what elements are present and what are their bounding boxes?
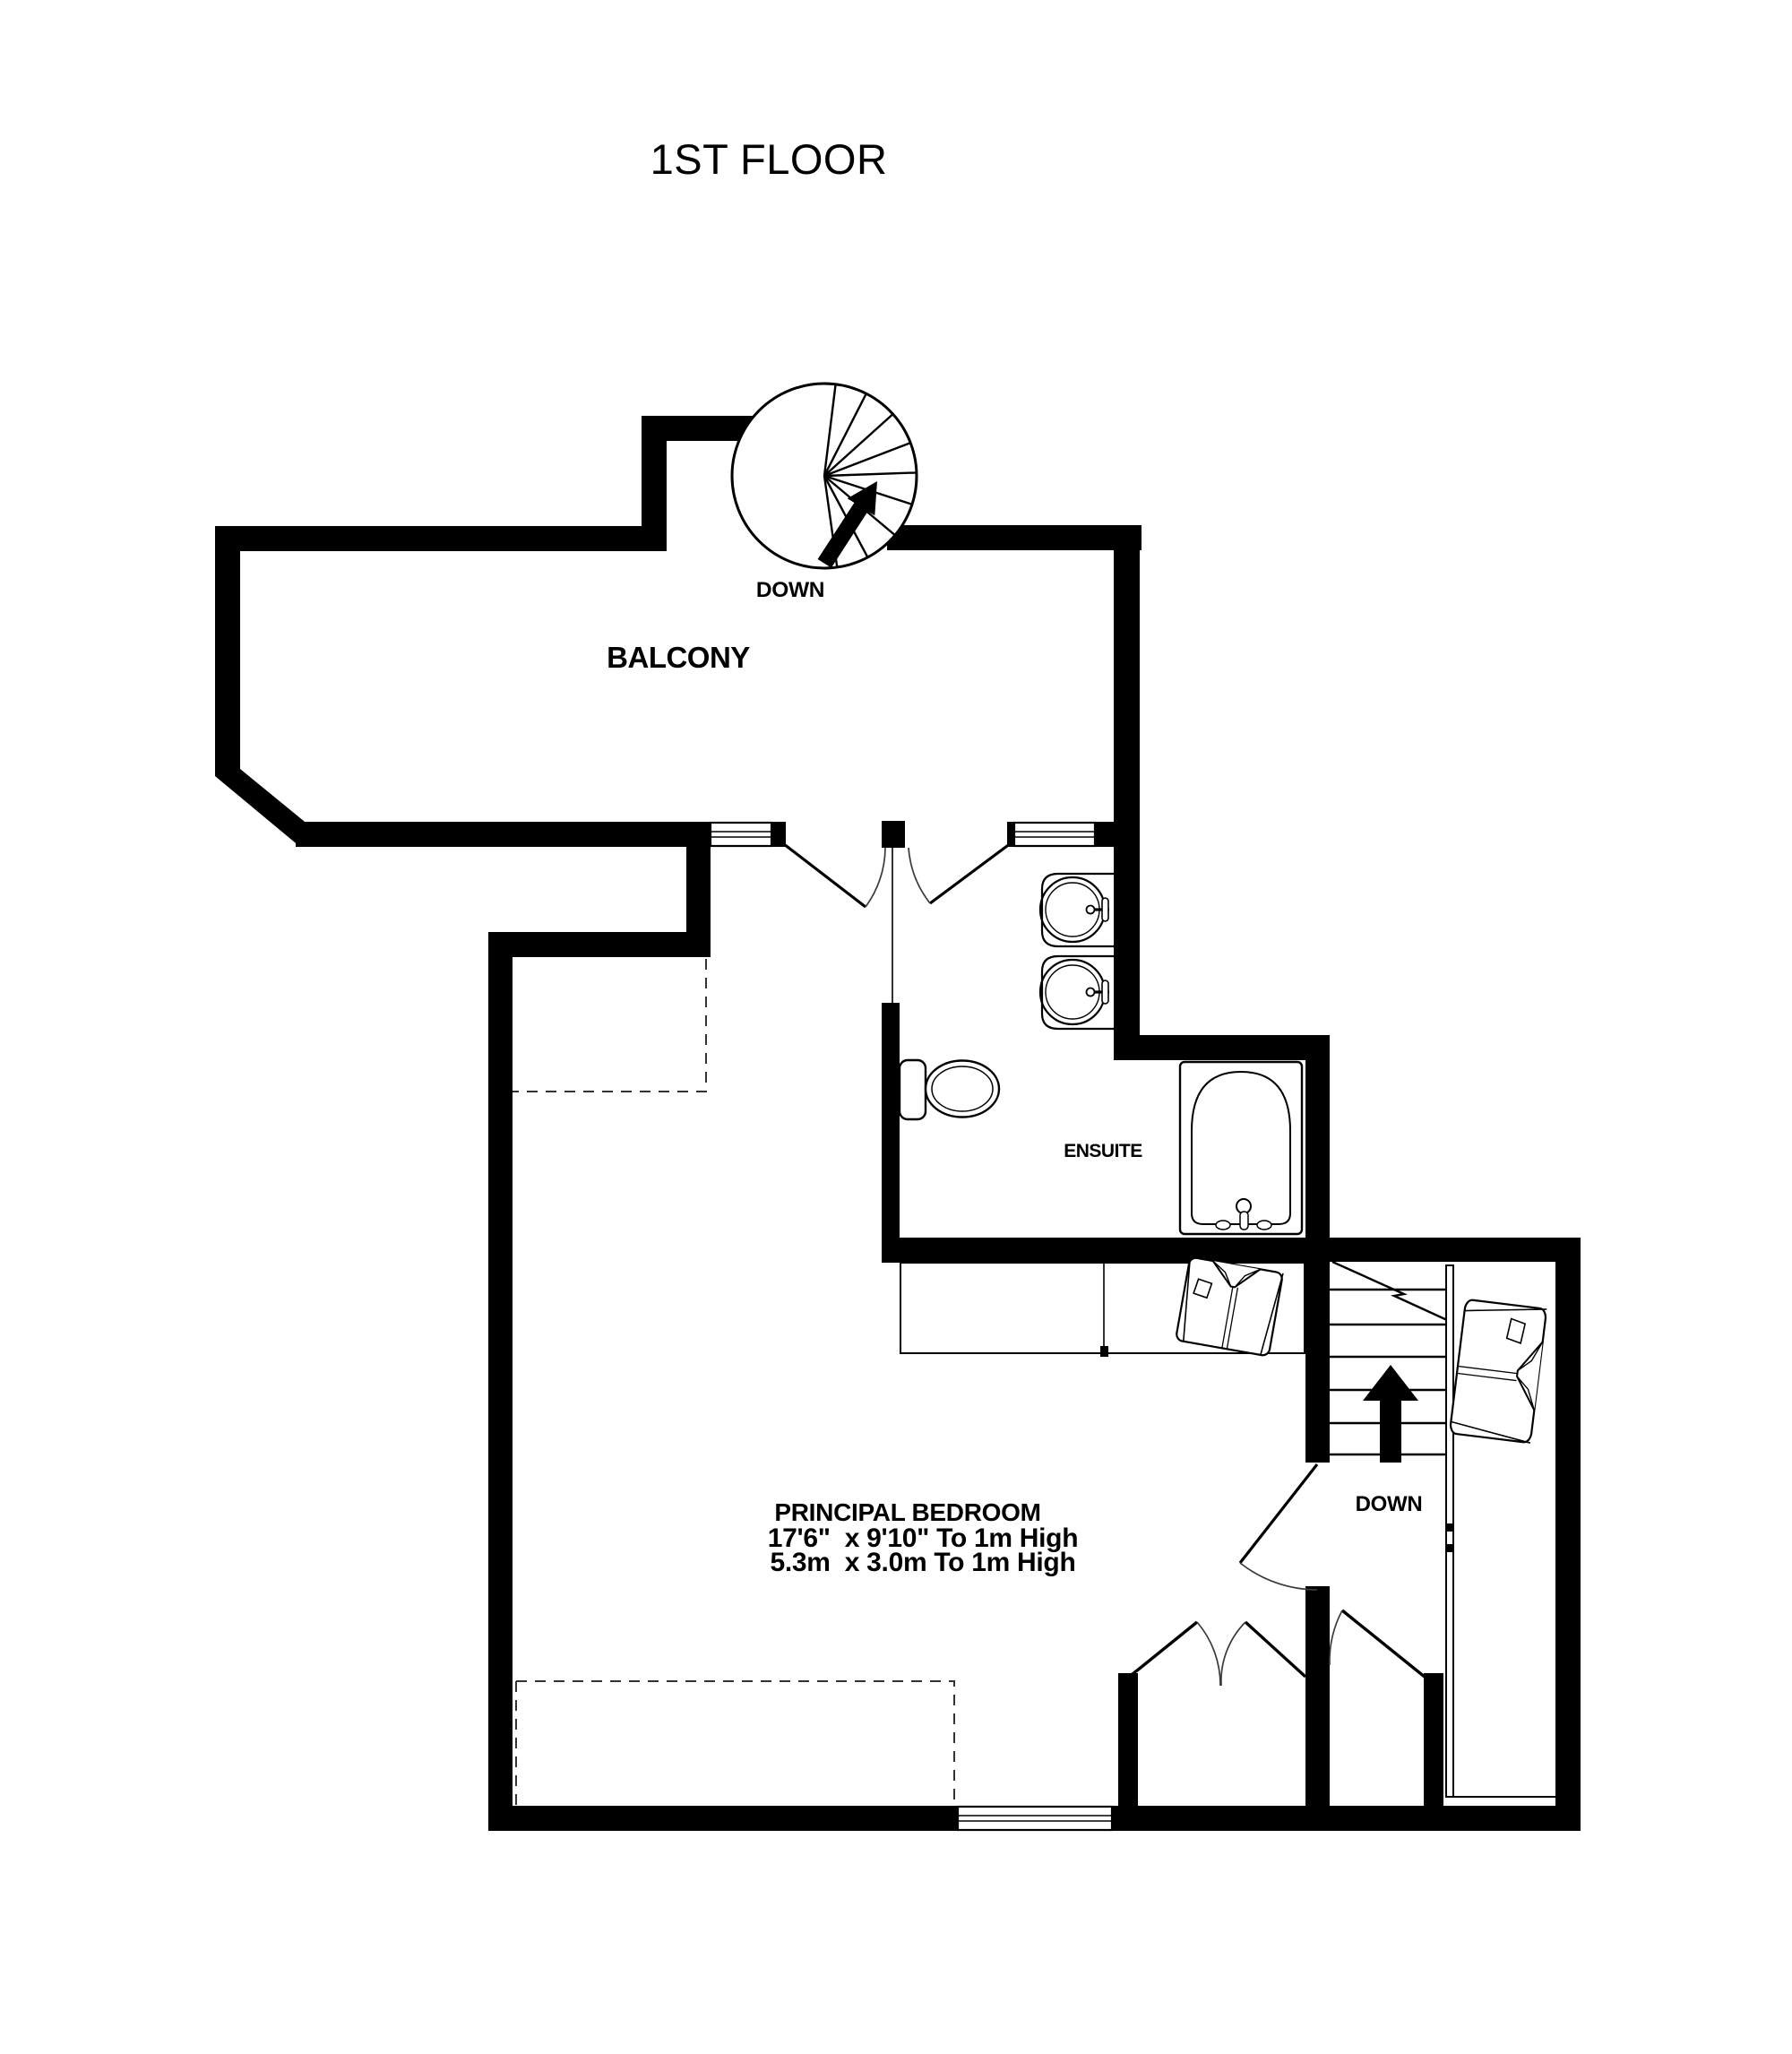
svg-text:5.3m x 3.0m To 1m High: 5.3m x 3.0m To 1m High [771,1548,1076,1577]
svg-text:PRINCIPAL BEDROOM: PRINCIPAL BEDROOM [774,1498,1040,1526]
svg-text:DOWN: DOWN [756,578,824,602]
svg-text:1ST FLOOR: 1ST FLOOR [650,135,888,183]
svg-text:BALCONY: BALCONY [607,641,750,674]
svg-text:DOWN: DOWN [1356,1492,1423,1516]
svg-text:ENSUITE: ENSUITE [1064,1141,1142,1161]
